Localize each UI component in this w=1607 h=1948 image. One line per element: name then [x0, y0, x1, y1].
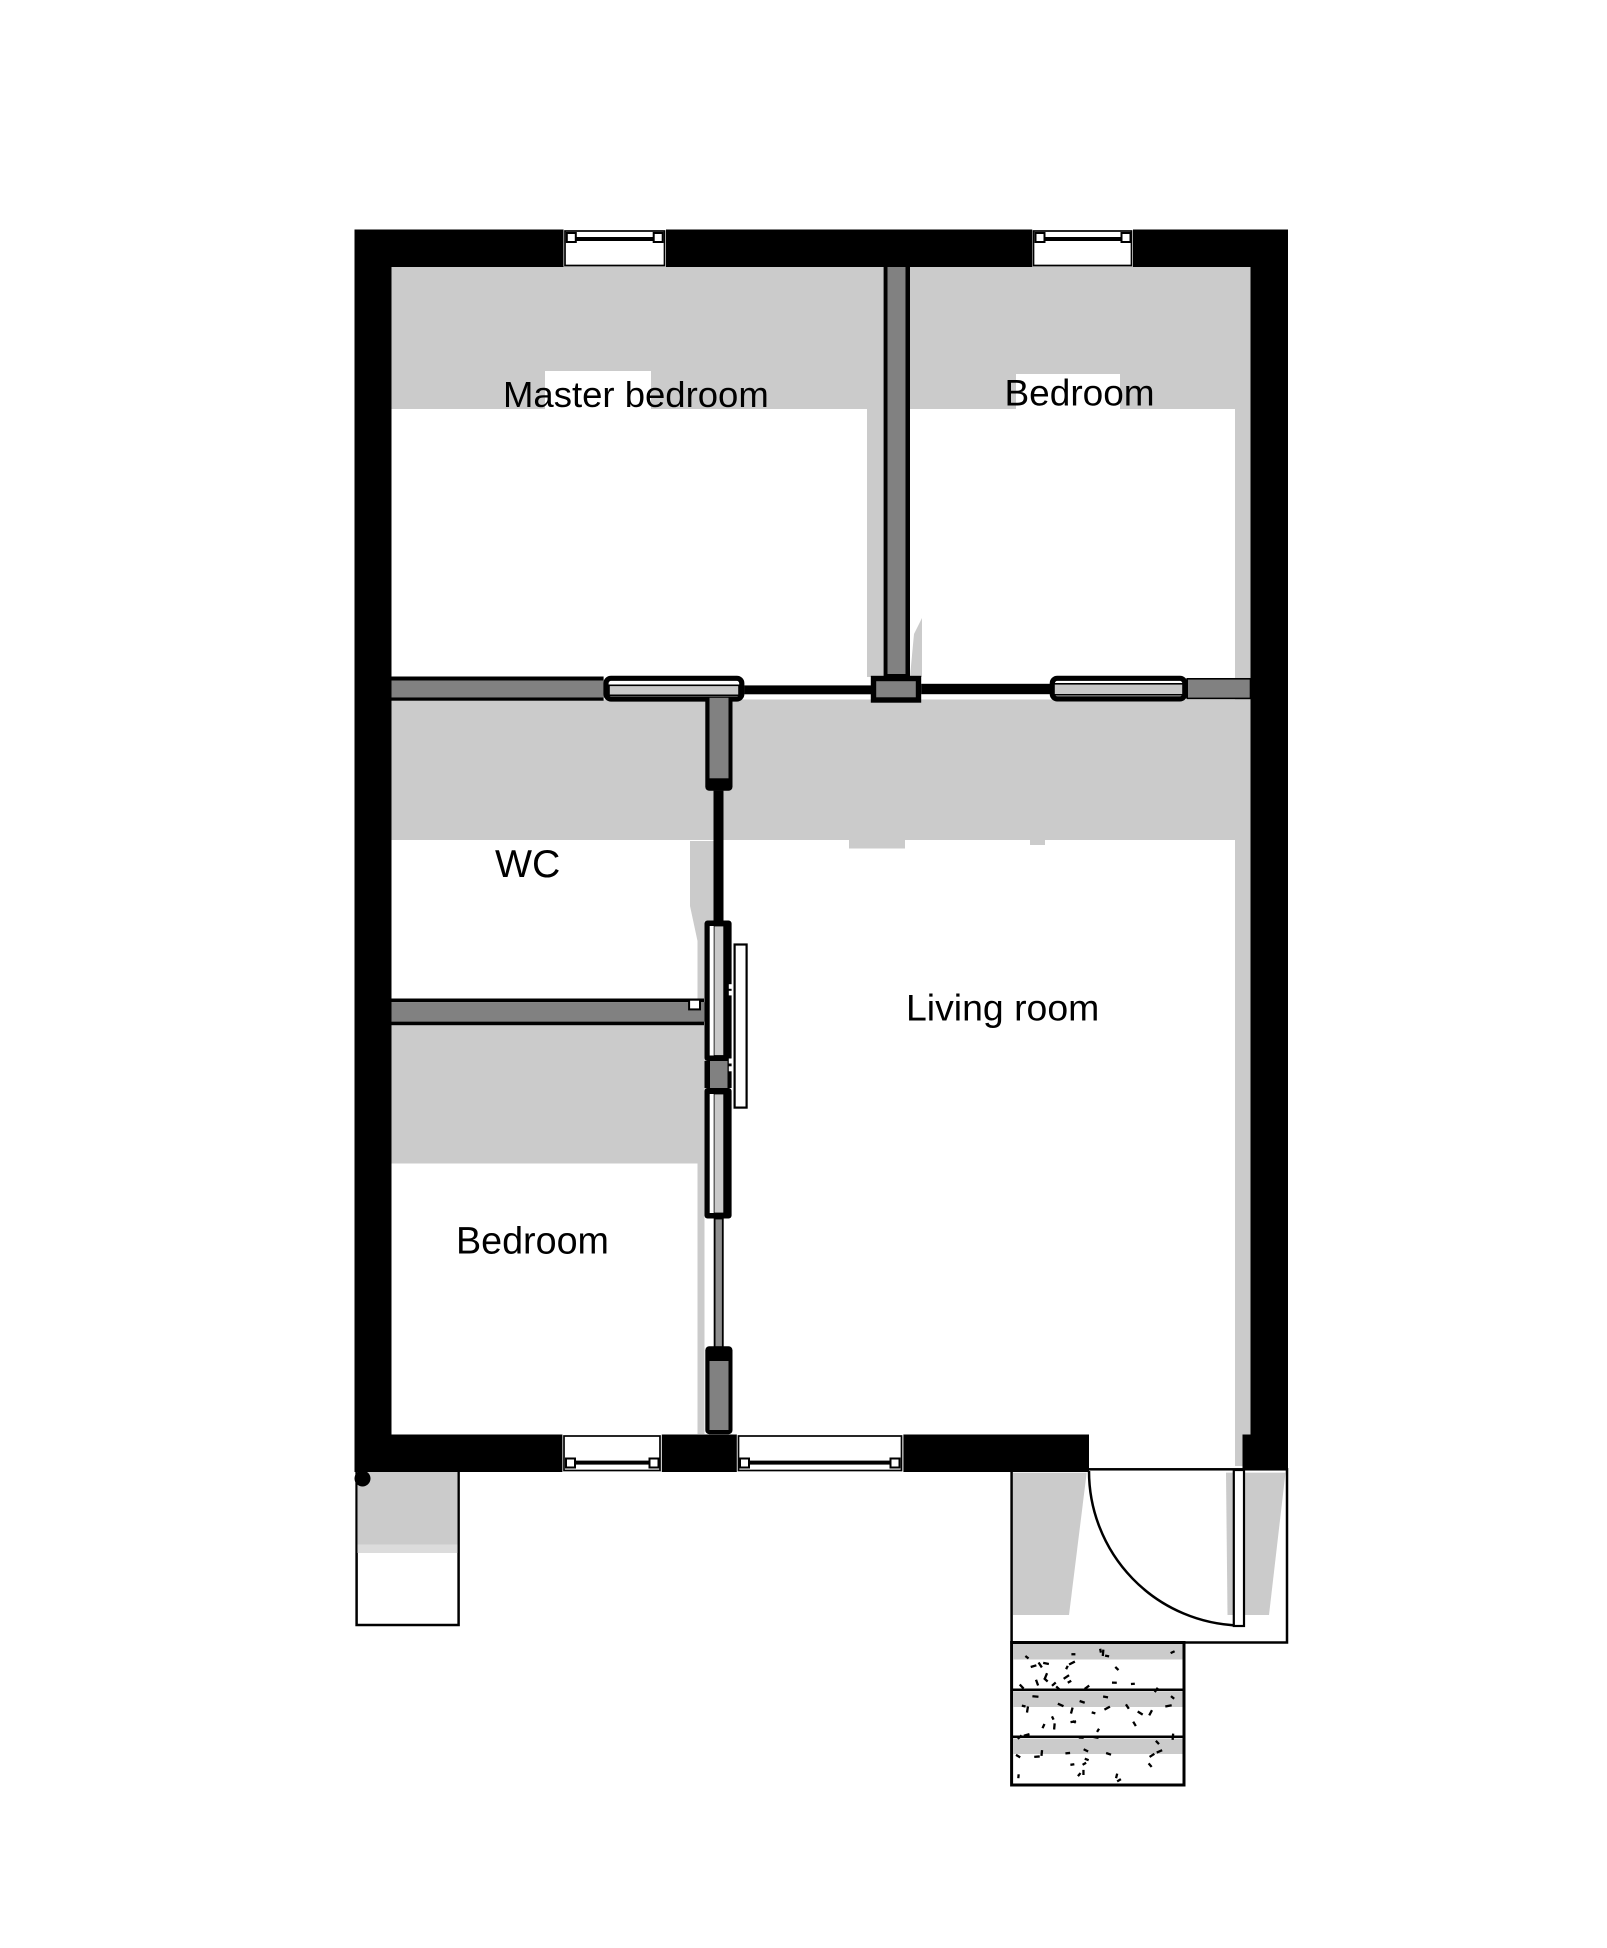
svg-text:Bedroom: Bedroom — [456, 1220, 609, 1262]
svg-text:WC: WC — [495, 843, 560, 886]
svg-text:Master bedroom: Master bedroom — [503, 374, 769, 415]
svg-text:Bedroom: Bedroom — [1005, 373, 1155, 414]
svg-text:Living room: Living room — [906, 987, 1099, 1029]
